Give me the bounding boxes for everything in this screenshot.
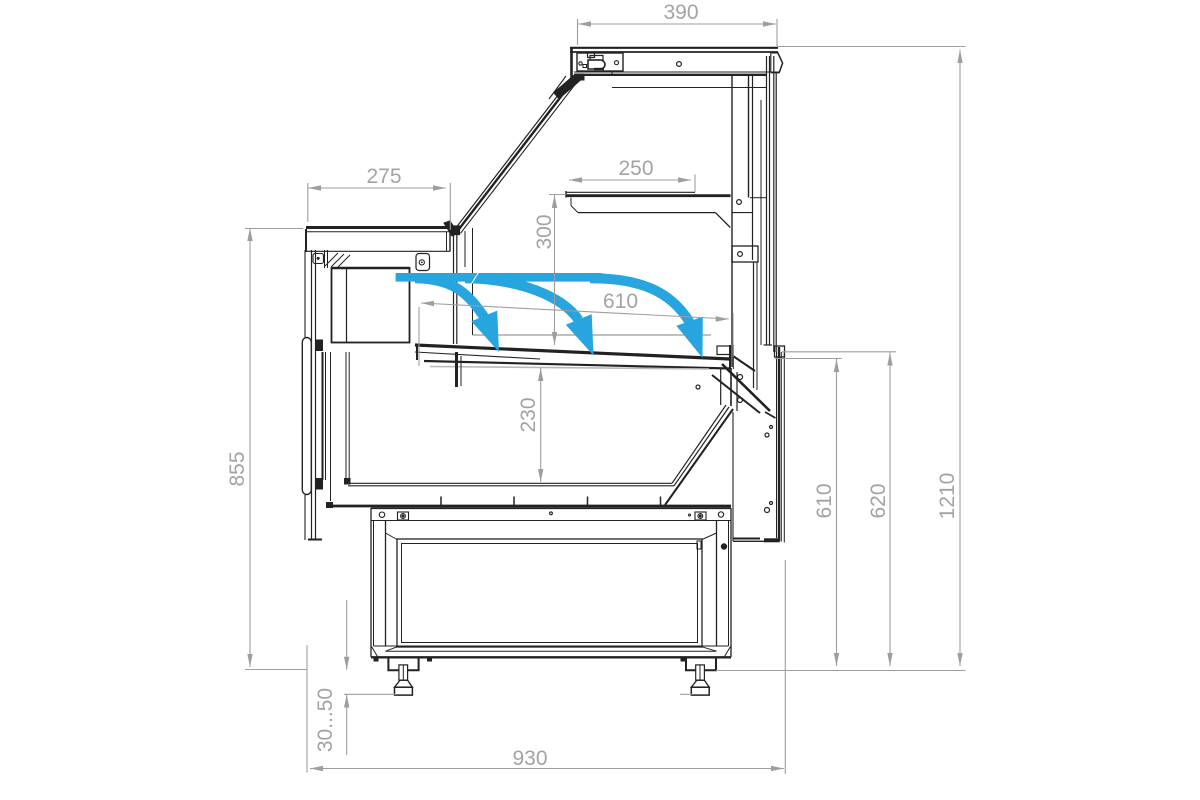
svg-text:275: 275 — [366, 165, 401, 188]
svg-text:610: 610 — [813, 483, 836, 518]
svg-text:855: 855 — [226, 451, 249, 486]
svg-text:1210: 1210 — [936, 473, 959, 520]
svg-text:300: 300 — [533, 214, 556, 249]
svg-text:930: 930 — [512, 747, 547, 770]
svg-text:230: 230 — [517, 397, 540, 432]
svg-text:390: 390 — [663, 1, 698, 24]
svg-text:610: 610 — [603, 290, 638, 313]
svg-text:250: 250 — [618, 157, 653, 180]
svg-text:30...50: 30...50 — [314, 688, 337, 752]
svg-text:620: 620 — [867, 483, 890, 518]
